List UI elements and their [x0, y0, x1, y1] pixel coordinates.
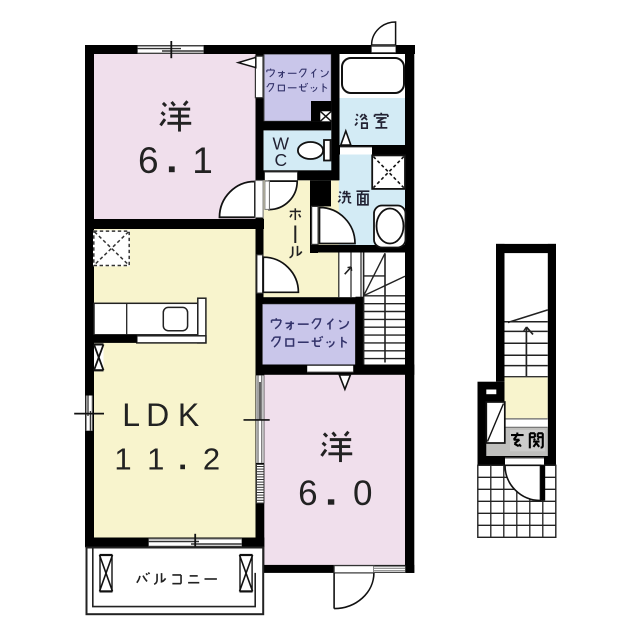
svg-text:1: 1	[114, 442, 131, 477]
svg-text:C: C	[274, 150, 287, 170]
svg-text:D: D	[146, 397, 169, 433]
svg-text:6: 6	[298, 474, 317, 513]
svg-text:2: 2	[203, 442, 220, 477]
svg-text:1: 1	[192, 140, 213, 181]
svg-text:6: 6	[138, 140, 159, 181]
svg-text:L: L	[122, 397, 140, 433]
svg-text:K: K	[178, 397, 199, 433]
svg-text:1: 1	[147, 442, 164, 477]
svg-text:0: 0	[353, 474, 372, 513]
